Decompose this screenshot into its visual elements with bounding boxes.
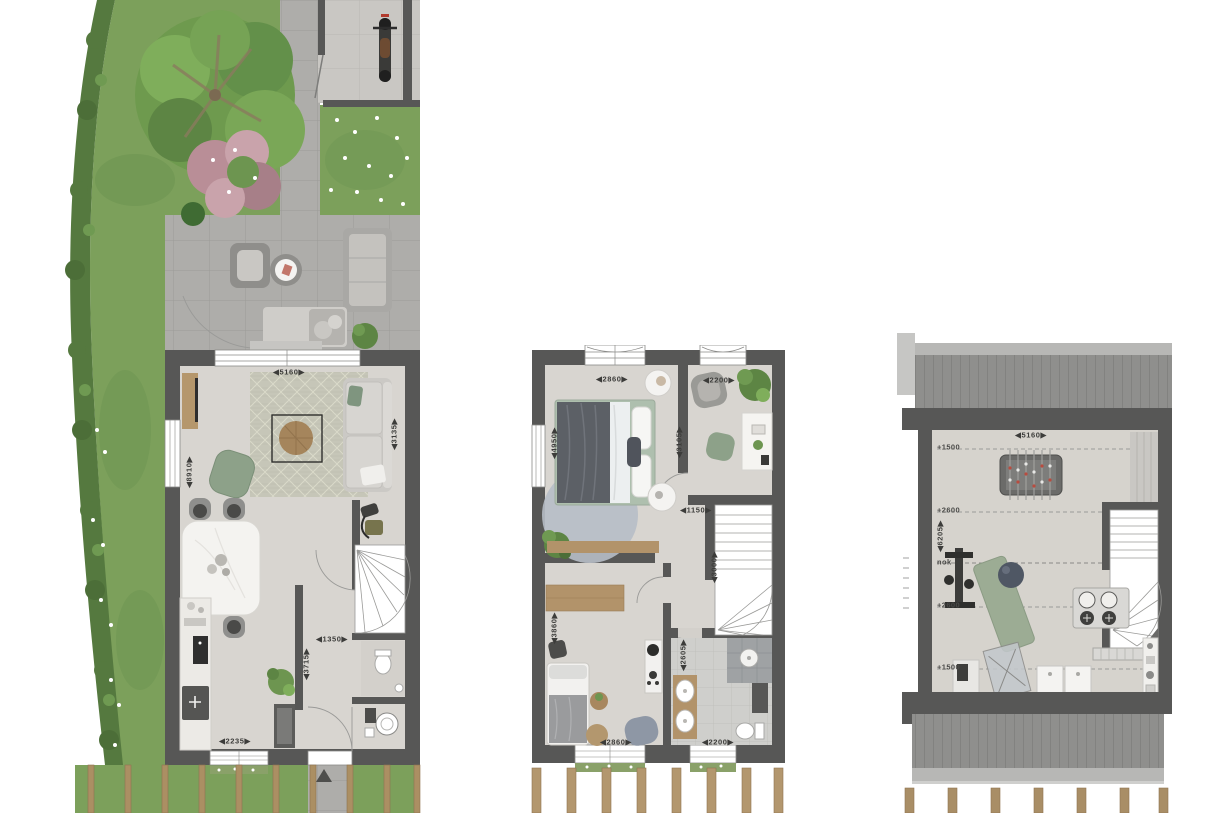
foosball-table [1000,450,1062,500]
wall-marks [903,558,909,608]
first-floor-joists [532,768,783,813]
exercise-ball [998,562,1024,588]
double-bed [555,400,655,505]
roof-top [897,333,1172,430]
sofa [343,378,392,492]
toilet [736,723,764,739]
single-bed [547,663,589,745]
tv-sideboard [182,373,198,429]
first-floor-plan [515,345,785,813]
bathroom [671,638,772,745]
attic-posts [905,788,1168,813]
vanity [673,675,697,739]
ground-floor-plan [65,0,430,813]
washer-column [645,640,662,693]
toilet-room [361,641,405,696]
attic-stair [1102,502,1161,660]
attic-counter [1143,638,1158,700]
first-floor-stair [715,505,772,635]
floor-plan-sheet: ◀5160▶◀3135▶◀8910▶◀1350▶◀3715▶◀2235▶◀286… [0,0,1220,813]
roof-bottom [902,692,1172,784]
garage [315,0,420,107]
attic-floor-plan [897,330,1175,813]
